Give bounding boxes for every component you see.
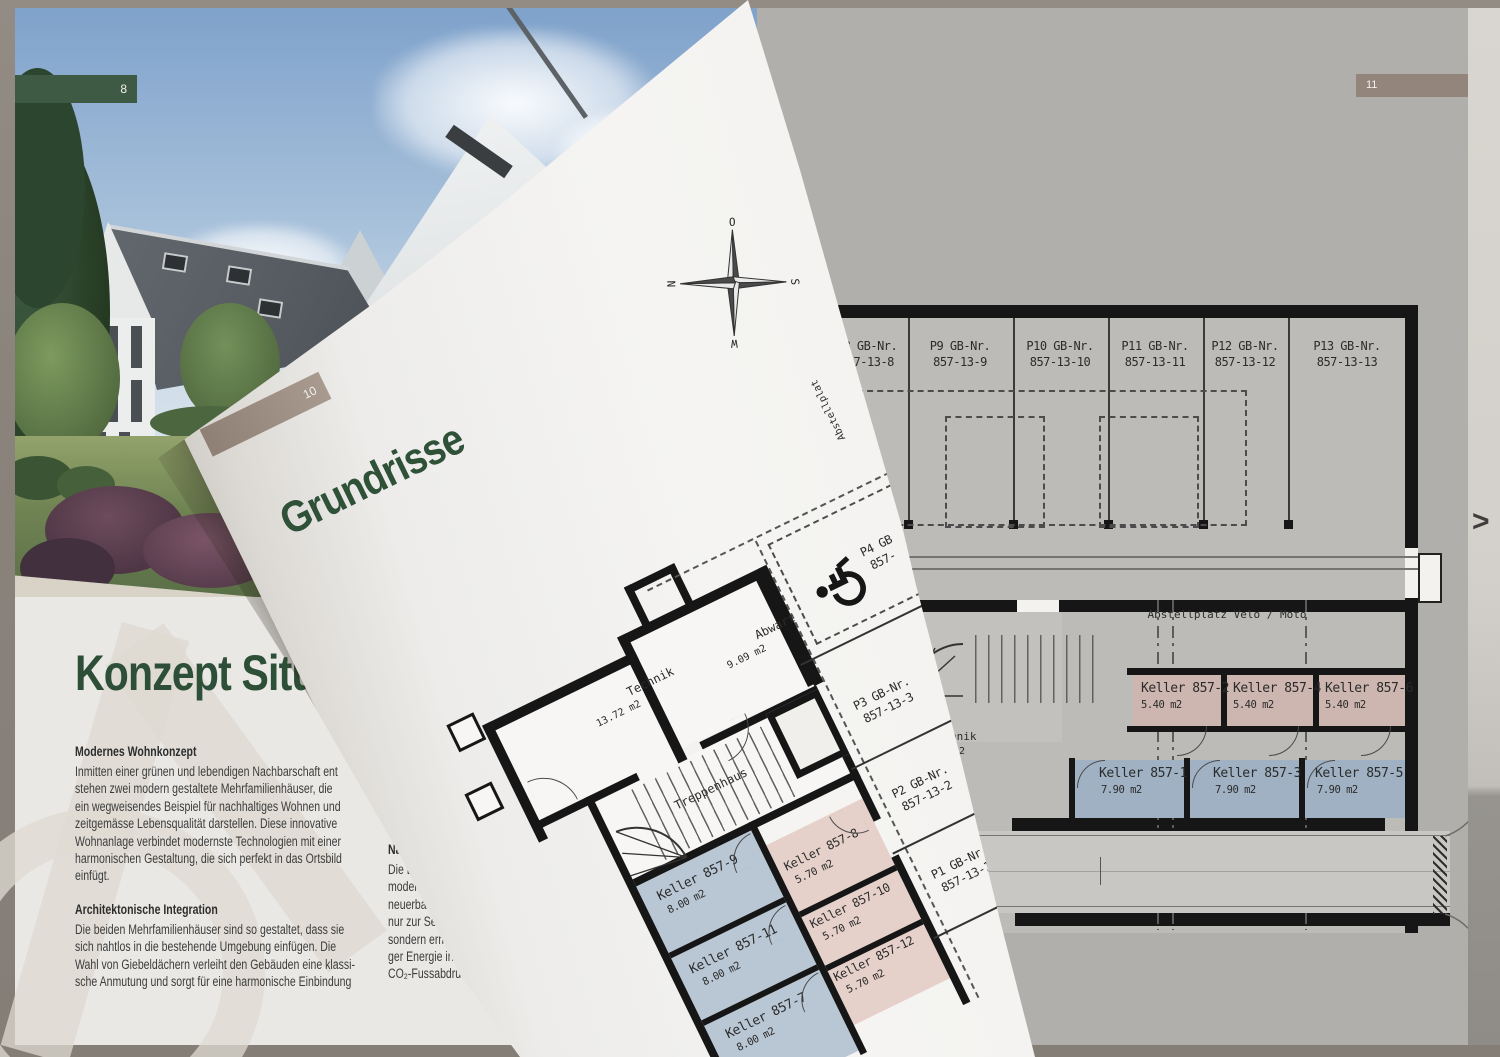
parking-stall-p3: P3 GB-Nr.857-13-3 bbox=[828, 662, 941, 739]
text-line: stehen zwei modern gestaltete Mehrfamili… bbox=[75, 780, 371, 797]
text-line: Die beiden Mehrfamilienhäuser sind so ge… bbox=[75, 921, 371, 938]
section-title: Modernes Wohnkonzept bbox=[75, 744, 371, 759]
door-arc bbox=[1361, 726, 1391, 756]
text-line: Inmitten einer grünen und lebendigen Nac… bbox=[75, 763, 371, 780]
driveway bbox=[955, 831, 1450, 913]
keller-area: 7.90 m2 bbox=[1101, 784, 1142, 796]
door-arc bbox=[1177, 726, 1207, 756]
keller-label: Keller 857-1 bbox=[1099, 766, 1187, 781]
keller-label: Keller 857-6 bbox=[1325, 681, 1413, 696]
page-number: 8 bbox=[120, 82, 127, 96]
facade-window bbox=[131, 380, 142, 422]
compass-o: O bbox=[729, 216, 736, 229]
text-line: zeitgemässe Lebensqualität darstellen. D… bbox=[75, 815, 371, 832]
keller-area: 5.40 m2 bbox=[1233, 699, 1274, 711]
text-line: Wohnanlage verbindet modernste Technolog… bbox=[75, 833, 371, 850]
page-title: Konzept Situ bbox=[75, 644, 316, 702]
text-line: ein wegweisendes Beispiel für nachhaltig… bbox=[75, 798, 371, 815]
text-line: Wahl von Giebeldächern verleiht den Gebä… bbox=[75, 956, 371, 973]
facade-window bbox=[131, 326, 142, 368]
compass-n: N bbox=[665, 280, 678, 287]
keller-area: 7.90 m2 bbox=[1215, 784, 1256, 796]
parking-stall-p9: P9 GB-Nr.857-13-9 bbox=[912, 338, 1008, 370]
parking-stall-p10: P10 GB-Nr.857-13-10 bbox=[1012, 338, 1108, 370]
text-line: einfügt. bbox=[75, 867, 371, 884]
page-badge-8: 8 bbox=[15, 75, 137, 103]
chapter-title: Grundrisse bbox=[272, 414, 472, 546]
page-number: 10 bbox=[301, 383, 319, 401]
keller-label: Keller 857-4 bbox=[1233, 681, 1321, 696]
roof-skylight bbox=[226, 265, 252, 286]
car-outline bbox=[1099, 416, 1199, 528]
roof-skylight bbox=[162, 252, 188, 273]
page-number: 11 bbox=[1366, 79, 1377, 91]
text-section-wohnkonzept: Modernes Wohnkonzept Inmitten einer grün… bbox=[75, 744, 371, 885]
keller-label: Keller 857-3 bbox=[1213, 766, 1301, 781]
keller-area: 5.40 m2 bbox=[1141, 699, 1182, 711]
flipbook-viewer: 8 Konzept Situ Modernes Wohnkonzept Inmi… bbox=[0, 0, 1500, 1057]
parking-stall-p13: P13 GB-Nr.857-13-13 bbox=[1299, 338, 1395, 370]
page-badge-11: 11 bbox=[1356, 74, 1468, 97]
bike-area-label: Abstellplatz Velo / Moto bbox=[1117, 608, 1337, 621]
stair-treads bbox=[975, 635, 1105, 703]
text-line: sich nahtlos in die bestehende Umgebung … bbox=[75, 938, 371, 955]
car-outline bbox=[945, 416, 1045, 528]
parking-stall-p11: P11 GB-Nr.857-13-11 bbox=[1107, 338, 1203, 370]
keller-area: 5.40 m2 bbox=[1325, 699, 1366, 711]
door-arc bbox=[1269, 726, 1299, 756]
keller-label: Keller 857-2 bbox=[1141, 681, 1229, 696]
compass-rose-icon: O S W N bbox=[665, 215, 801, 351]
next-page-chevron[interactable]: > bbox=[1472, 505, 1490, 539]
text-line: harmonischen Gestaltung, die sich perfek… bbox=[75, 850, 371, 867]
page-stack-edge: > bbox=[1468, 8, 1500, 1045]
compass-s: S bbox=[788, 278, 801, 285]
text-line: sche Anmutung und sorgt für eine harmoni… bbox=[75, 973, 371, 990]
text-section-integration: Architektonische Integration Die beiden … bbox=[75, 902, 371, 991]
parking-stall-p12: P12 GB-Nr.857-13-12 bbox=[1197, 338, 1293, 370]
section-title: Architektonische Integration bbox=[75, 902, 371, 917]
compass-w: W bbox=[731, 337, 738, 350]
